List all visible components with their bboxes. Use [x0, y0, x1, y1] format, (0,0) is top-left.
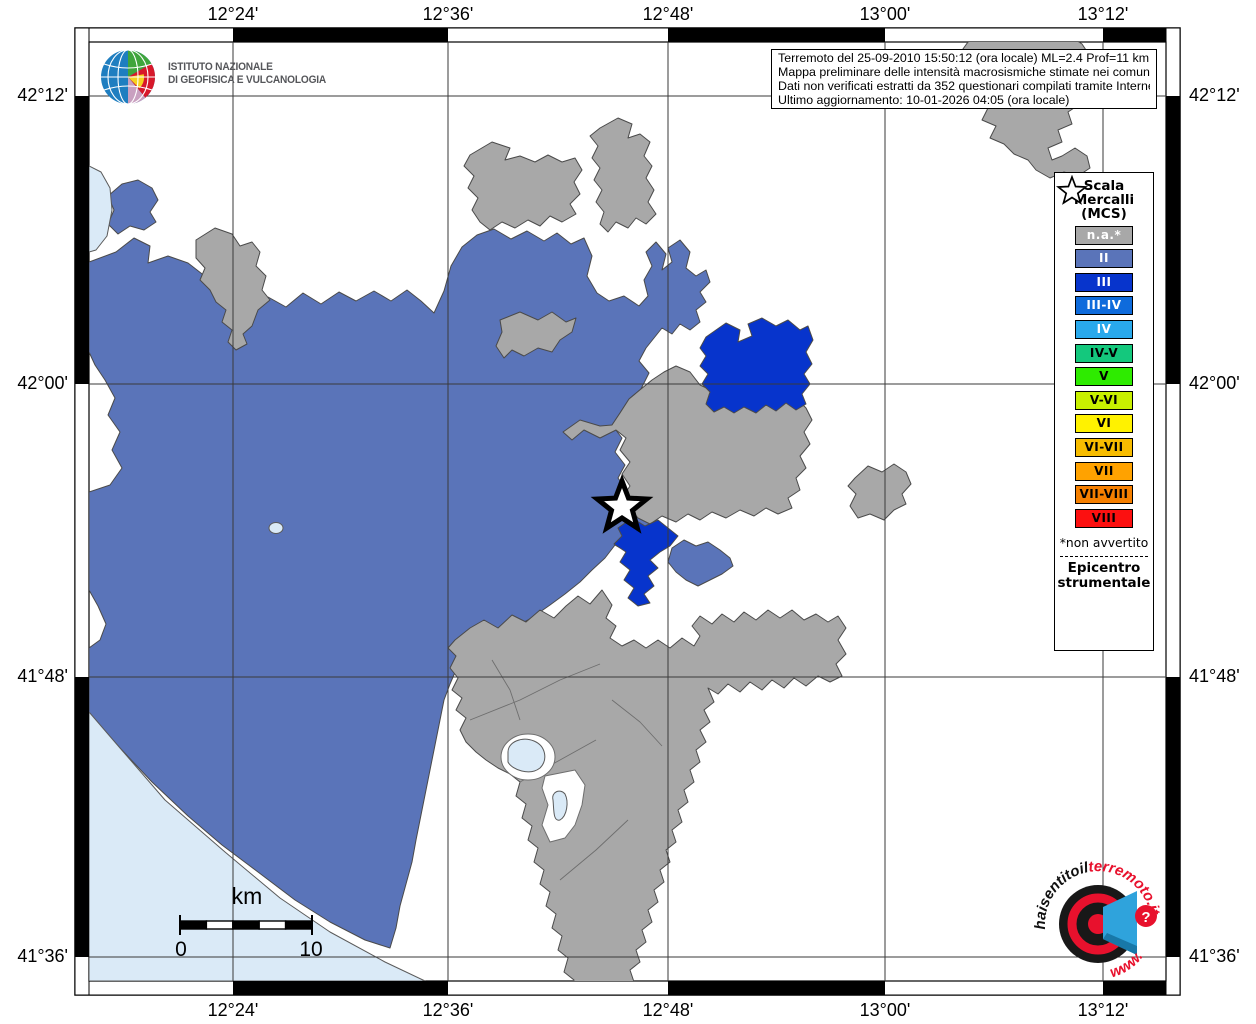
legend-footnote: *non avvertito — [1055, 536, 1153, 550]
earthquake-info-box: Terremoto del 25-09-2010 15:50:12 (ora l… — [771, 49, 1157, 109]
axis-label-right-3: 41°48' — [1189, 666, 1256, 687]
legend-divider — [1060, 556, 1148, 557]
legend-swatch-vi: VI — [1075, 414, 1133, 433]
axis-label-bottom-5: 13°12' — [1058, 1000, 1148, 1021]
legend-swatch-iv: IV — [1075, 320, 1133, 339]
ingv-name-line1: ISTITUTO NAZIONALE — [168, 61, 326, 74]
legend-title-line3: (MCS) — [1055, 207, 1153, 221]
legend-swatch-iii: III — [1075, 273, 1133, 292]
legend-swatch-iii-iv: III-IV — [1075, 296, 1133, 315]
axis-label-right-1: 42°12' — [1189, 85, 1256, 106]
legend-swatch-viii: VIII — [1075, 509, 1133, 528]
ingv-logo-icon — [101, 50, 155, 104]
legend-swatch-na: n.a.* — [1075, 226, 1133, 245]
legend-epicenter-line2: strumentale — [1055, 576, 1153, 592]
axis-label-top-2: 12°36' — [403, 4, 493, 25]
legend-epicenter-star-icon — [1055, 175, 1089, 205]
axis-label-left-4: 41°36' — [4, 946, 68, 967]
info-line-event: Terremoto del 25-09-2010 15:50:12 (ora l… — [778, 52, 1150, 66]
legend-swatch-v: V — [1075, 367, 1133, 386]
axis-label-left-3: 41°48' — [4, 666, 68, 687]
legend-box: Scala Mercalli (MCS) n.a.* II III III-IV… — [1054, 172, 1154, 651]
legend-swatch-v-vi: V-VI — [1075, 391, 1133, 410]
axis-label-left-1: 42°12' — [4, 85, 68, 106]
axis-label-top-4: 13°00' — [840, 4, 930, 25]
axis-label-top-3: 12°48' — [623, 4, 713, 25]
scalebar-unit-label: km — [217, 883, 277, 910]
axis-label-left-2: 42°00' — [4, 373, 68, 394]
axis-label-bottom-2: 12°36' — [403, 1000, 493, 1021]
axis-label-bottom-4: 13°00' — [840, 1000, 930, 1021]
legend-swatch-vii: VII — [1075, 462, 1133, 481]
info-line-data: Dati non verificati estratti da 352 ques… — [778, 80, 1150, 94]
lake-martignano — [269, 523, 283, 534]
info-line-map: Mappa preliminare delle intensità macros… — [778, 66, 1150, 80]
legend-epicenter-label: Epicentro strumentale — [1055, 561, 1153, 592]
legend-epicenter-line1: Epicentro — [1055, 561, 1153, 577]
ingv-logo-text: ISTITUTO NAZIONALE DI GEOFISICA E VULCAN… — [168, 61, 326, 86]
legend-swatch-ii: II — [1075, 249, 1133, 268]
info-line-update: Ultimo aggiornamento: 10-01-2026 04:05 (… — [778, 94, 1150, 108]
axis-label-top-1: 12°24' — [188, 4, 278, 25]
scalebar-start-label: 0 — [170, 938, 192, 962]
region-intensity-iii-north — [700, 318, 813, 413]
lake-albano — [508, 739, 545, 772]
ingv-name-line2: DI GEOFISICA E VULCANOLOGIA — [168, 74, 326, 87]
axis-label-bottom-3: 12°48' — [623, 1000, 713, 1021]
axis-label-right-2: 42°00' — [1189, 373, 1256, 394]
legend-swatch-vii-viii: VII-VIII — [1075, 485, 1133, 504]
macroseismic-map-page: ? haisentitoilterremoto.it www. ISTITUTO… — [0, 0, 1256, 1024]
axis-label-right-4: 41°36' — [1189, 946, 1256, 967]
scalebar-end-label: 10 — [296, 938, 326, 962]
axis-label-top-5: 13°12' — [1058, 4, 1148, 25]
axis-label-bottom-1: 12°24' — [188, 1000, 278, 1021]
legend-swatch-iv-v: IV-V — [1075, 344, 1133, 363]
legend-swatch-vi-vii: VI-VII — [1075, 438, 1133, 457]
